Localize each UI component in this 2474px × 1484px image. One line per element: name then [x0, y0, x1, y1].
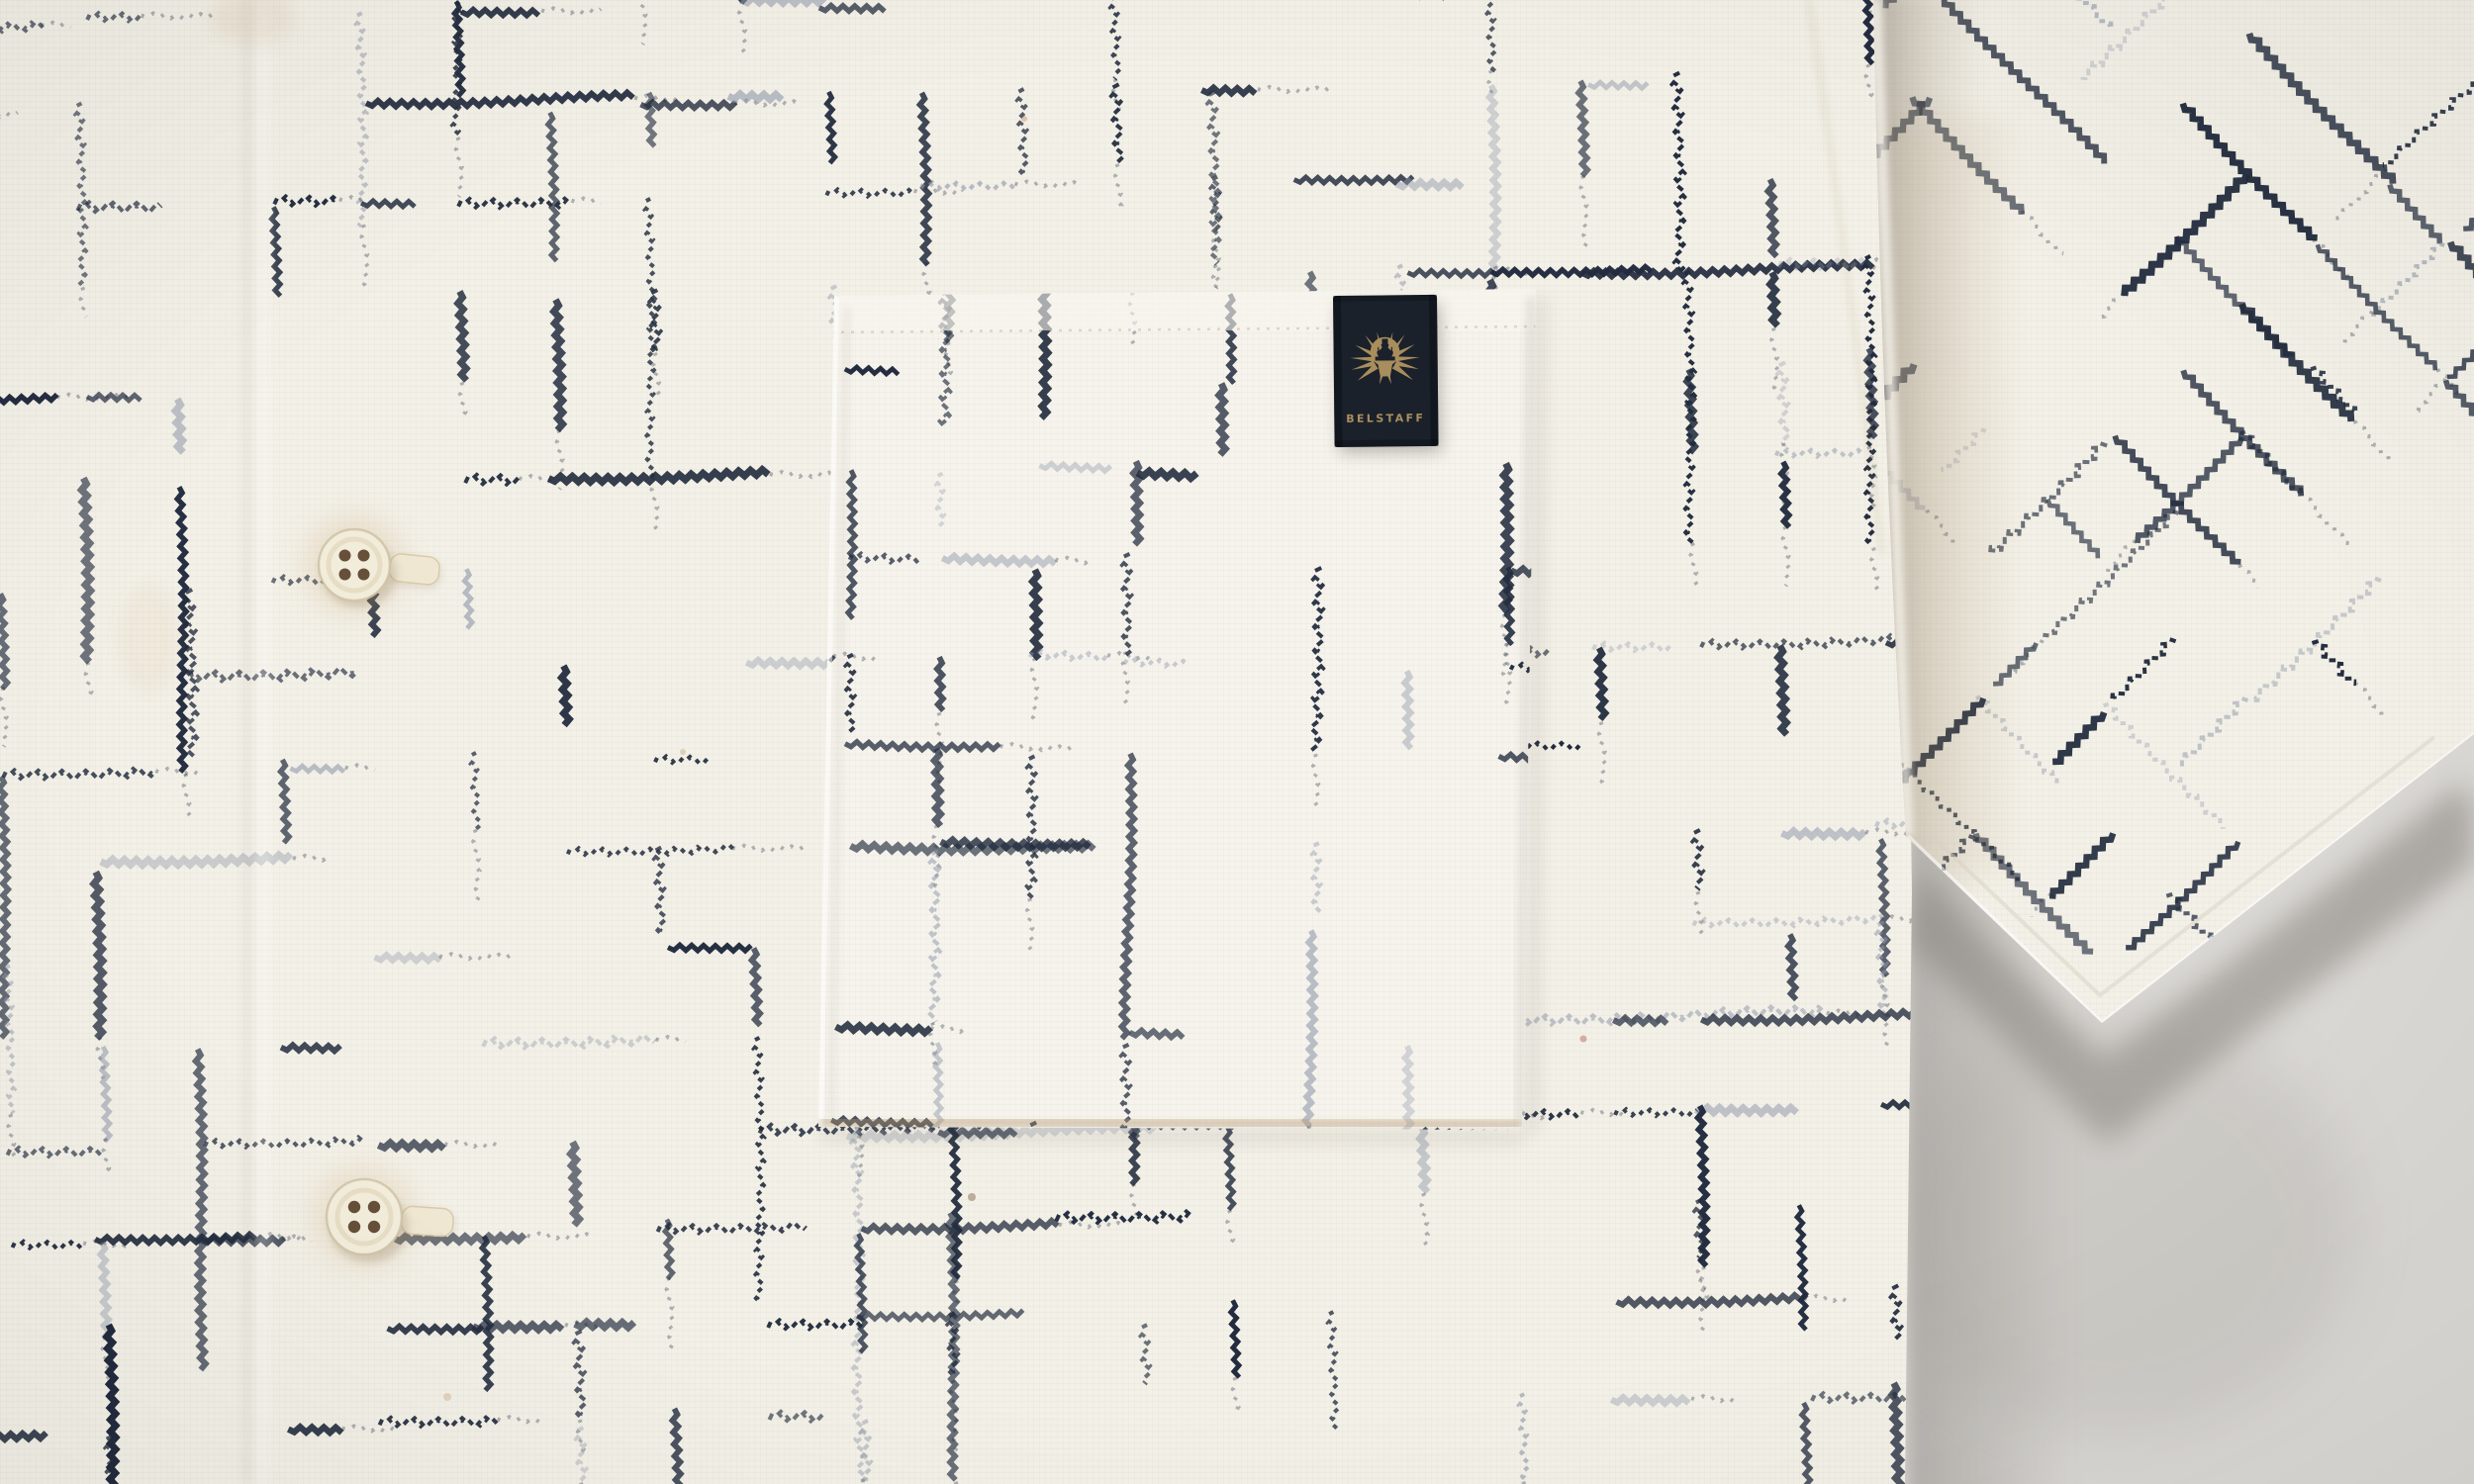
product-photo-canvas: BELSTAFF	[0, 0, 2474, 1484]
vignette	[0, 0, 2474, 1484]
product-photo: BELSTAFF	[0, 0, 2474, 1484]
